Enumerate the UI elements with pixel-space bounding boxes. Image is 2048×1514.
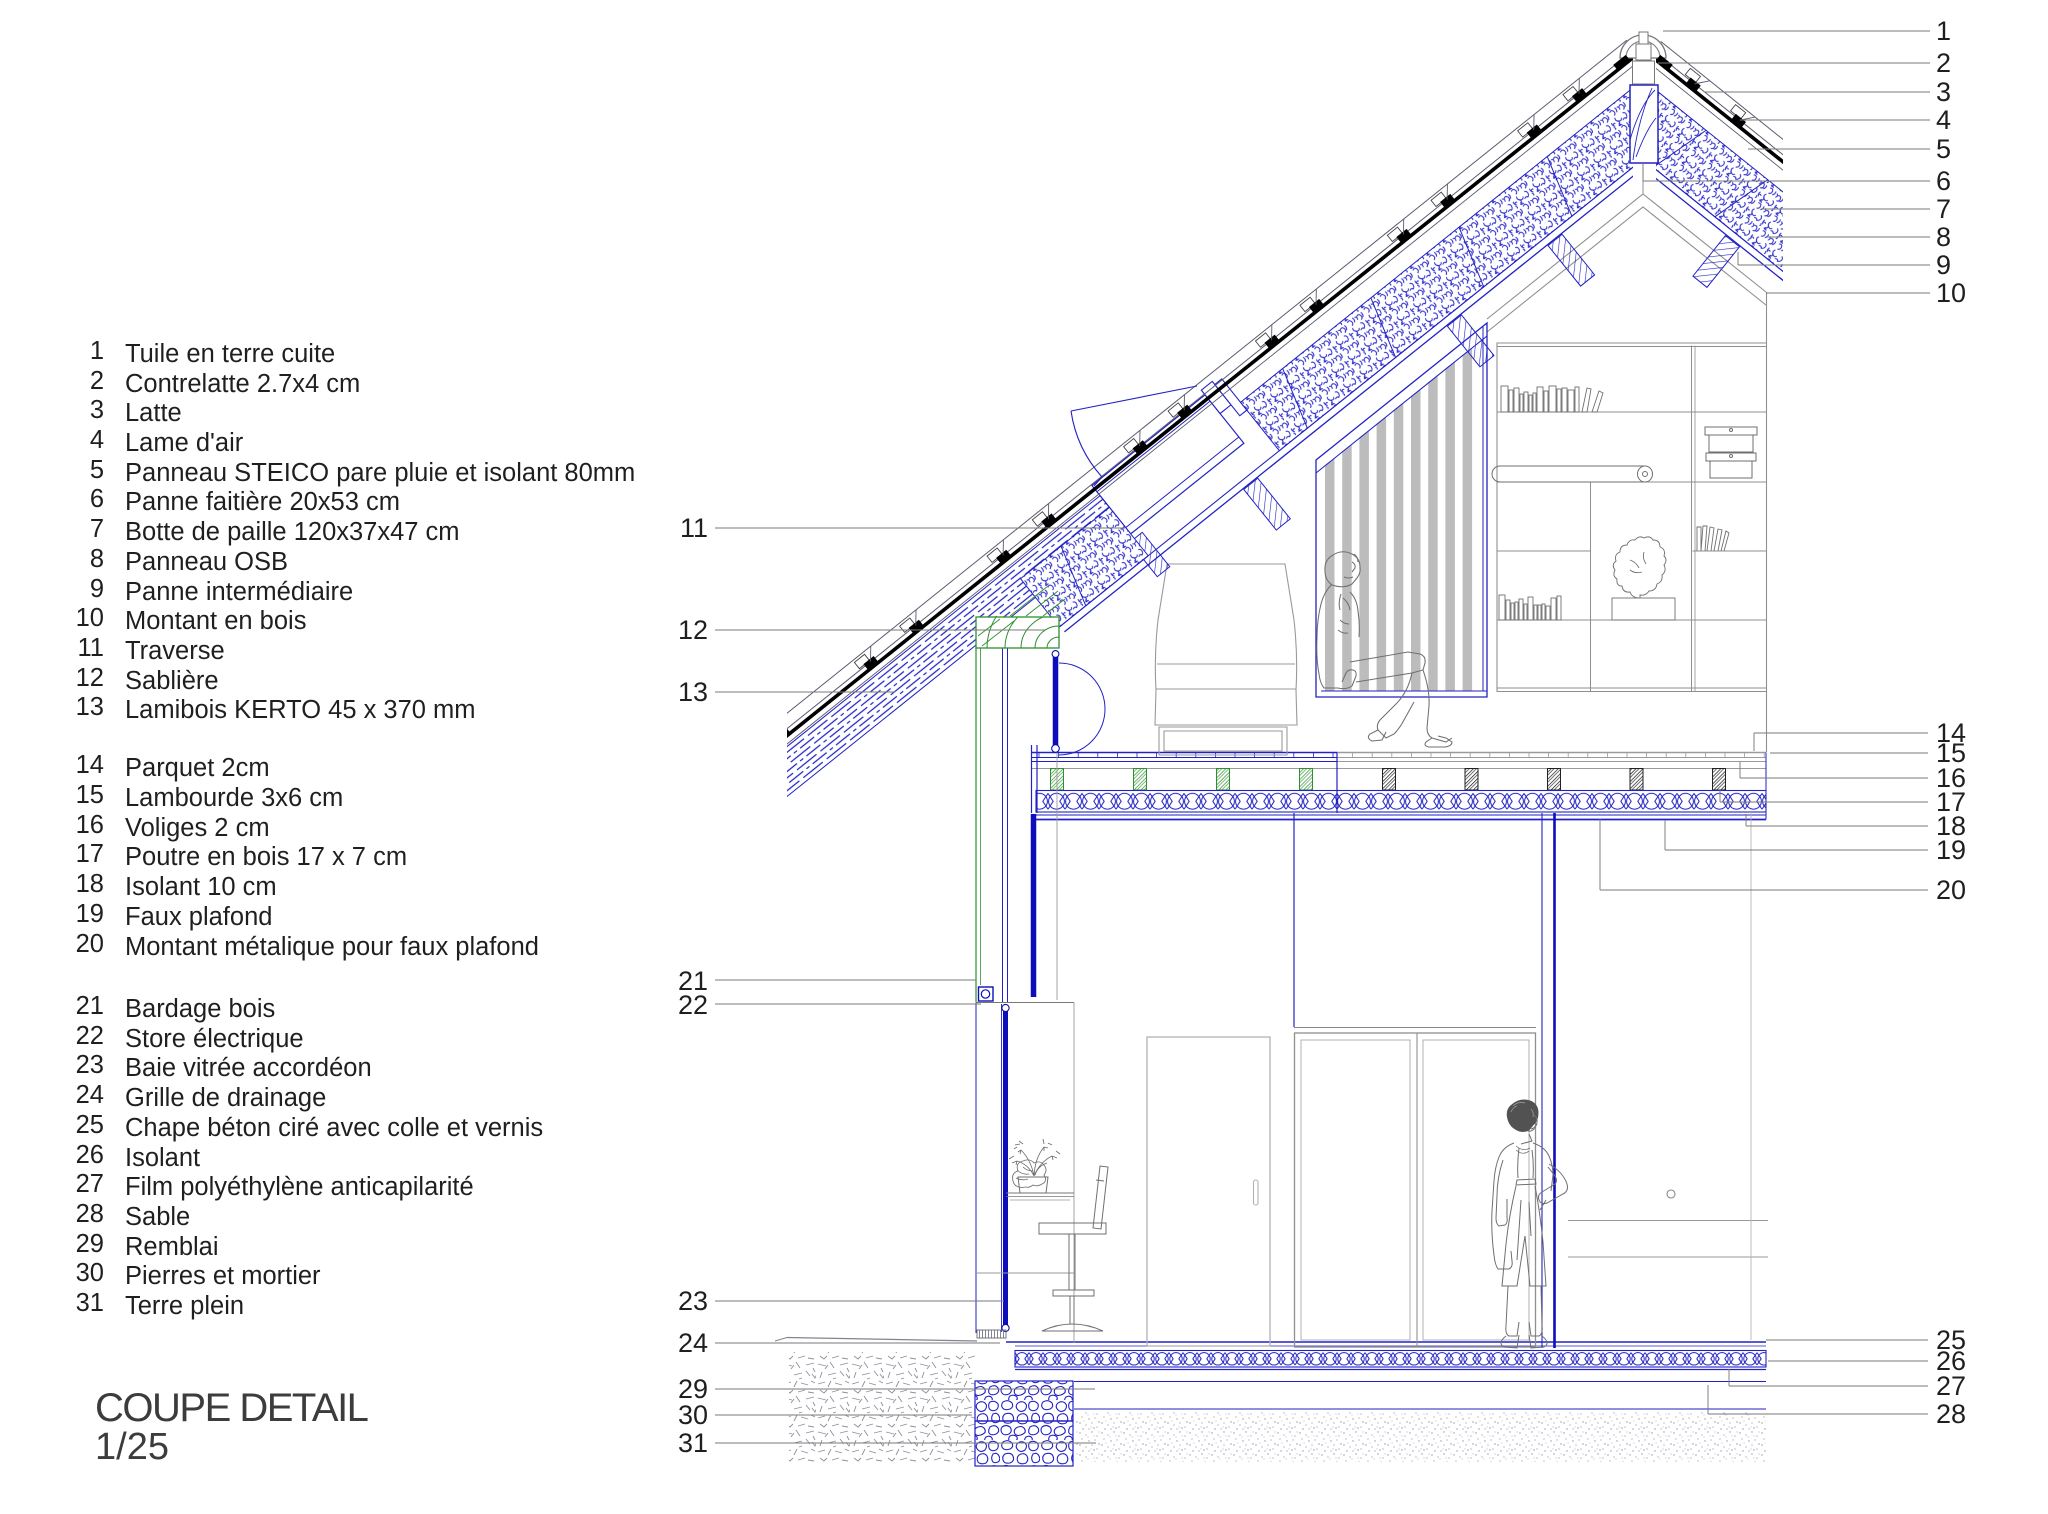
svg-text:16: 16 (76, 811, 104, 839)
svg-text:28: 28 (76, 1200, 104, 1228)
svg-text:6: 6 (1936, 166, 1951, 196)
svg-text:1/25: 1/25 (95, 1426, 169, 1468)
svg-text:Baie vitrée accordéon: Baie vitrée accordéon (125, 1054, 372, 1082)
svg-text:22: 22 (678, 990, 708, 1020)
svg-text:24: 24 (76, 1081, 104, 1109)
svg-text:9: 9 (90, 575, 104, 603)
svg-text:Isolant: Isolant (125, 1144, 200, 1172)
svg-text:Panneau STEICO pare pluie et i: Panneau STEICO pare pluie et isolant 80m… (125, 459, 635, 487)
svg-text:7: 7 (90, 515, 104, 543)
svg-text:Poutre en bois 17 x 7 cm: Poutre en bois 17 x 7 cm (125, 843, 407, 871)
svg-text:26: 26 (76, 1141, 104, 1169)
svg-text:21: 21 (76, 992, 104, 1020)
svg-text:Voliges 2 cm: Voliges 2 cm (125, 814, 270, 842)
svg-text:18: 18 (76, 870, 104, 898)
svg-text:30: 30 (76, 1259, 104, 1287)
svg-text:Terre plein: Terre plein (125, 1292, 244, 1320)
svg-text:8: 8 (90, 545, 104, 573)
svg-text:13: 13 (678, 677, 708, 707)
svg-text:2: 2 (90, 367, 104, 395)
svg-text:8: 8 (1936, 222, 1951, 252)
svg-text:Montant en bois: Montant en bois (125, 607, 306, 635)
svg-text:Latte: Latte (125, 399, 182, 427)
svg-text:22: 22 (76, 1022, 104, 1050)
svg-text:6: 6 (90, 485, 104, 513)
svg-text:Parquet 2cm: Parquet 2cm (125, 754, 270, 782)
svg-text:11: 11 (78, 634, 104, 662)
svg-text:28: 28 (1936, 1399, 1966, 1429)
svg-text:20: 20 (76, 930, 104, 958)
svg-text:4: 4 (90, 426, 104, 454)
svg-text:Lamibois KERTO 45 x 370 mm: Lamibois KERTO 45 x 370 mm (125, 696, 476, 724)
svg-text:19: 19 (76, 900, 104, 928)
svg-text:23: 23 (76, 1051, 104, 1079)
svg-text:15: 15 (76, 781, 104, 809)
svg-text:2: 2 (1936, 48, 1951, 78)
svg-text:Lame d'air: Lame d'air (125, 429, 244, 457)
svg-text:COUPE DETAIL: COUPE DETAIL (95, 1386, 368, 1430)
svg-text:31: 31 (678, 1428, 708, 1458)
svg-text:1: 1 (1936, 16, 1951, 46)
svg-text:7: 7 (1936, 194, 1951, 224)
svg-text:Panne faitière 20x53 cm: Panne faitière 20x53 cm (125, 488, 400, 516)
svg-text:25: 25 (76, 1111, 104, 1139)
svg-text:12: 12 (76, 664, 104, 692)
svg-text:Film polyéthylène anticapilari: Film polyéthylène anticapilarité (125, 1173, 474, 1201)
svg-text:31: 31 (76, 1289, 104, 1317)
svg-text:Grille de drainage: Grille de drainage (125, 1084, 326, 1112)
svg-text:Botte de paille 120x37x47 cm: Botte de paille 120x37x47 cm (125, 518, 460, 546)
svg-text:3: 3 (1936, 77, 1951, 107)
svg-text:12: 12 (678, 615, 708, 645)
svg-text:Bardage bois: Bardage bois (125, 995, 275, 1023)
svg-text:13: 13 (76, 693, 104, 721)
svg-text:Sable: Sable (125, 1203, 190, 1231)
svg-text:Montant métalique pour faux pl: Montant métalique pour faux plafond (125, 933, 539, 961)
svg-text:Store électrique: Store électrique (125, 1025, 304, 1053)
svg-text:Panneau OSB: Panneau OSB (125, 548, 288, 576)
svg-text:5: 5 (1936, 134, 1951, 164)
svg-text:Remblai: Remblai (125, 1233, 219, 1261)
svg-text:Traverse: Traverse (125, 637, 225, 665)
svg-text:14: 14 (76, 751, 104, 779)
svg-text:1: 1 (90, 337, 104, 365)
svg-text:9: 9 (1936, 250, 1951, 280)
svg-text:10: 10 (76, 604, 104, 632)
svg-text:11: 11 (680, 513, 708, 543)
svg-text:Contrelatte 2.7x4 cm: Contrelatte 2.7x4 cm (125, 370, 360, 398)
svg-text:27: 27 (76, 1170, 104, 1198)
svg-text:10: 10 (1936, 278, 1966, 308)
svg-text:Faux plafond: Faux plafond (125, 903, 272, 931)
svg-text:23: 23 (678, 1286, 708, 1316)
svg-text:29: 29 (76, 1230, 104, 1258)
svg-text:Lambourde 3x6 cm: Lambourde 3x6 cm (125, 784, 343, 812)
svg-text:17: 17 (76, 840, 104, 868)
svg-text:Sablière: Sablière (125, 667, 219, 695)
svg-text:Panne intermédiaire: Panne intermédiaire (125, 578, 353, 606)
svg-text:Pierres et mortier: Pierres et mortier (125, 1262, 321, 1290)
svg-text:30: 30 (678, 1400, 708, 1430)
svg-text:3: 3 (90, 396, 104, 424)
svg-text:Isolant 10 cm: Isolant 10 cm (125, 873, 277, 901)
svg-text:27: 27 (1936, 1371, 1966, 1401)
svg-text:5: 5 (90, 456, 104, 484)
svg-text:24: 24 (678, 1328, 708, 1358)
svg-text:19: 19 (1936, 835, 1966, 865)
svg-text:Chape béton ciré avec colle et: Chape béton ciré avec colle et vernis (125, 1114, 543, 1142)
svg-text:Tuile en terre cuite: Tuile en terre cuite (125, 340, 335, 368)
svg-text:20: 20 (1936, 875, 1966, 905)
svg-text:4: 4 (1936, 105, 1951, 135)
